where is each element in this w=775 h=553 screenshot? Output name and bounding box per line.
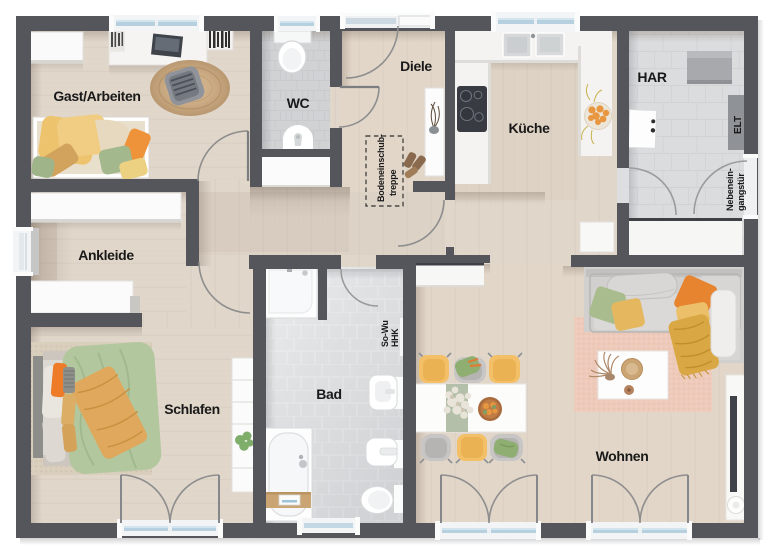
svg-text:Diele: Diele (400, 58, 432, 74)
svg-text:HAR: HAR (637, 69, 667, 85)
svg-text:WC: WC (287, 95, 310, 111)
svg-text:Bad: Bad (316, 386, 341, 402)
svg-text:Schlafen: Schlafen (164, 401, 220, 417)
svg-text:treppe: treppe (388, 169, 398, 196)
svg-text:gangstür: gangstür (736, 173, 746, 211)
svg-text:Ankleide: Ankleide (78, 247, 134, 263)
svg-text:HHK: HHK (390, 328, 400, 347)
svg-text:Wohnen: Wohnen (596, 448, 649, 464)
svg-text:Gast/Arbeiten: Gast/Arbeiten (53, 88, 140, 104)
svg-text:Bodeneinschub-: Bodeneinschub- (376, 134, 386, 202)
svg-text:Küche: Küche (508, 120, 550, 136)
svg-text:ELT: ELT (733, 116, 744, 134)
svg-text:Nebenein-: Nebenein- (725, 168, 735, 211)
svg-text:So-Wu: So-Wu (380, 320, 390, 347)
